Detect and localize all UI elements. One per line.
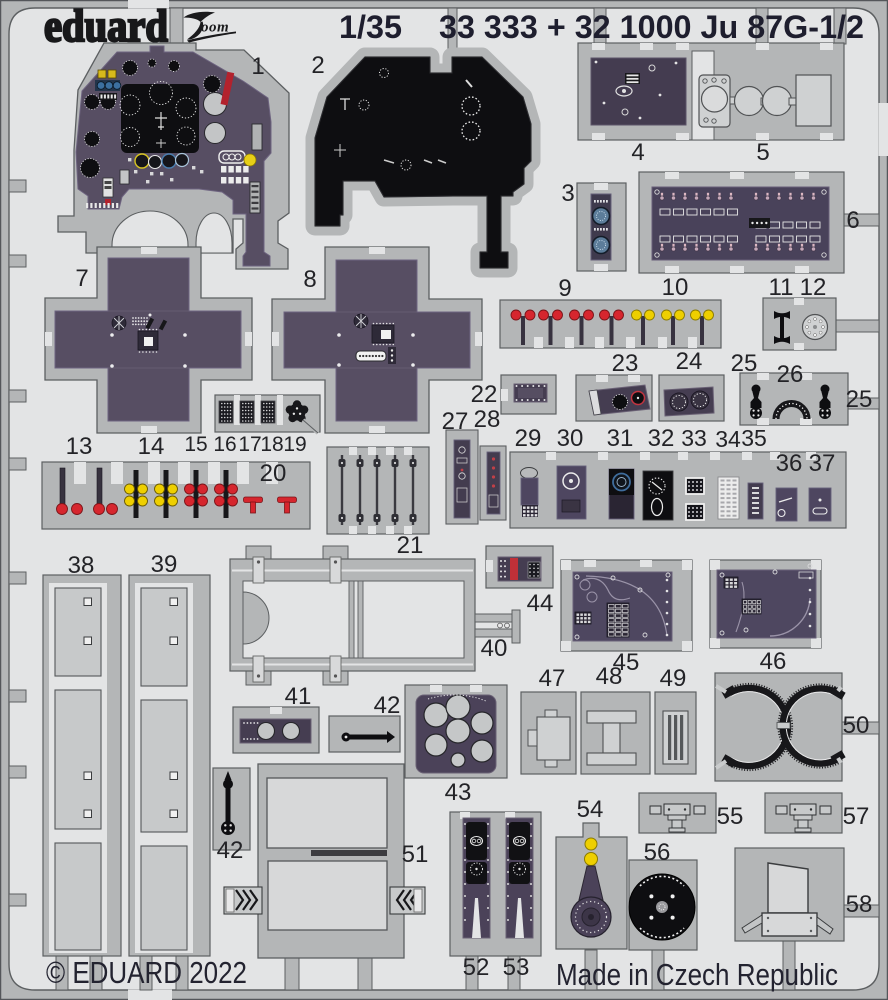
svg-text:30: 30 (557, 425, 584, 452)
svg-text:24: 24 (676, 348, 703, 375)
svg-text:29: 29 (515, 425, 542, 452)
svg-text:22: 22 (471, 381, 498, 408)
svg-text:50: 50 (843, 712, 870, 739)
svg-text:27: 27 (442, 408, 469, 435)
svg-text:10: 10 (662, 274, 689, 301)
svg-text:35: 35 (741, 425, 767, 451)
svg-text:17: 17 (238, 433, 261, 456)
svg-text:1: 1 (251, 53, 264, 80)
svg-text:53: 53 (503, 954, 530, 981)
svg-text:20: 20 (260, 460, 287, 487)
svg-text:56: 56 (644, 839, 671, 866)
svg-text:25: 25 (846, 386, 873, 413)
svg-text:41: 41 (285, 683, 312, 710)
svg-text:46: 46 (760, 648, 787, 675)
svg-text:55: 55 (717, 803, 744, 830)
svg-text:37: 37 (809, 450, 836, 477)
svg-text:1/35: 1/35 (339, 9, 402, 45)
svg-text:34: 34 (715, 426, 741, 452)
svg-text:4: 4 (631, 139, 644, 166)
svg-text:43: 43 (445, 779, 472, 806)
svg-text:44: 44 (527, 590, 554, 617)
svg-text:11: 11 (769, 274, 794, 301)
svg-text:7: 7 (75, 265, 88, 292)
svg-text:3: 3 (561, 180, 574, 207)
svg-text:16: 16 (213, 433, 236, 456)
svg-text:47: 47 (539, 665, 566, 692)
svg-text:15: 15 (184, 433, 207, 456)
svg-text:31: 31 (607, 425, 634, 452)
svg-text:42: 42 (217, 837, 244, 864)
svg-text:6: 6 (846, 207, 859, 234)
svg-text:26: 26 (777, 361, 804, 388)
svg-text:5: 5 (756, 139, 769, 166)
svg-text:33 333 + 32 1000 Ju 87G-1/2: 33 333 + 32 1000 Ju 87G-1/2 (439, 9, 864, 45)
svg-text:oom: oom (201, 20, 229, 36)
svg-text:39: 39 (151, 551, 178, 578)
svg-text:28: 28 (474, 406, 501, 433)
svg-text:48: 48 (596, 663, 623, 690)
svg-text:21: 21 (397, 532, 424, 559)
svg-text:Made in Czech Republic: Made in Czech Republic (556, 957, 838, 992)
svg-text:52: 52 (463, 954, 490, 981)
svg-text:23: 23 (612, 350, 639, 377)
svg-text:57: 57 (843, 803, 870, 830)
svg-text:13: 13 (66, 433, 93, 460)
svg-text:14: 14 (138, 433, 165, 460)
svg-text:2: 2 (311, 52, 324, 79)
svg-text:54: 54 (577, 796, 604, 823)
svg-text:42: 42 (374, 692, 401, 719)
svg-text:49: 49 (660, 665, 687, 692)
svg-text:33: 33 (681, 425, 707, 451)
svg-text:© EDUARD 2022: © EDUARD 2022 (46, 955, 247, 990)
svg-text:25: 25 (731, 350, 758, 377)
svg-text:38: 38 (68, 552, 95, 579)
svg-text:18: 18 (260, 433, 283, 456)
svg-text:51: 51 (402, 841, 429, 868)
svg-text:36: 36 (776, 450, 803, 477)
svg-text:58: 58 (846, 891, 873, 918)
svg-text:19: 19 (283, 433, 306, 456)
svg-text:8: 8 (303, 266, 316, 293)
svg-text:12: 12 (800, 274, 827, 301)
svg-text:40: 40 (481, 635, 508, 662)
svg-text:32: 32 (648, 425, 675, 452)
svg-text:9: 9 (558, 275, 571, 302)
